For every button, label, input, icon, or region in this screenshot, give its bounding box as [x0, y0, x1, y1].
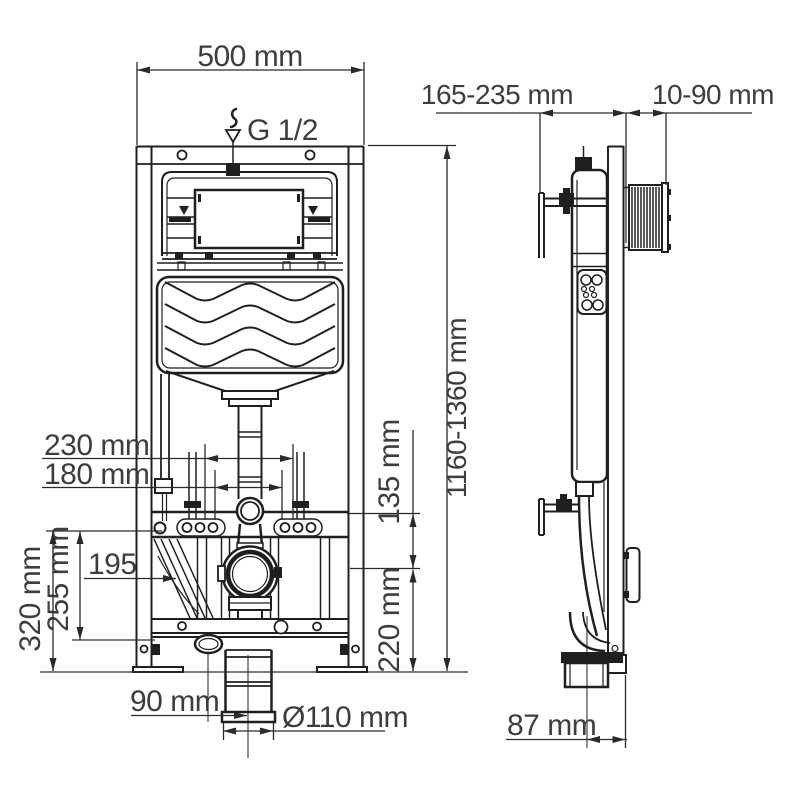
dim-flush-pipe-offset: 135 mm: [347, 419, 420, 568]
supply-position-label: 195: [88, 548, 137, 581]
side-cistern: [572, 146, 607, 612]
technical-drawing: 500 mm G 1/2 1160-1360 mm 230 mm 180 mm: [0, 0, 800, 800]
supply-pipe: [155, 374, 172, 521]
front-view: [133, 109, 367, 758]
dim-bend-height: 255 mm: [42, 526, 162, 640]
flush-plate-sleeve: [624, 183, 672, 252]
frame-feet: [133, 644, 367, 672]
dim-outlet-axis-height: 220 mm: [373, 567, 417, 672]
upper-wall-bracket: [539, 188, 608, 258]
bolt-spacing-inner-label: 180 mm: [44, 458, 149, 491]
side-outlet-depth-label: 87 mm: [507, 709, 596, 742]
flush-pipe-offset-label: 135 mm: [373, 419, 406, 524]
side-view: [539, 146, 671, 748]
frame-bottom-height-label: 320 mm: [14, 546, 47, 651]
water-wave: [165, 348, 335, 367]
flush-pipe: [239, 406, 262, 499]
waste-outlet: [218, 547, 282, 620]
plate-depth-label: 10-90 mm: [652, 79, 774, 110]
height-range-label: 1160-1360 mm: [441, 318, 472, 498]
access-panel: [195, 190, 303, 248]
side-flush-bend: [570, 496, 640, 651]
water-inlet-connection: [226, 109, 240, 176]
water-wave: [165, 326, 335, 345]
frame-width-label: 500 mm: [197, 40, 302, 73]
side-fixing-plate: [578, 270, 607, 314]
bottom-oval-outlet: [195, 635, 222, 653]
water-inlet-label: G 1/2: [247, 114, 318, 147]
dimensions: 500 mm G 1/2 1160-1360 mm 230 mm 180 mm: [14, 40, 774, 748]
depth-range-label: 165-235 mm: [421, 79, 573, 110]
lower-crossbar: [152, 619, 348, 637]
dim-depth-range: 165-235 mm 10-90 mm: [421, 79, 774, 243]
lower-wall-bracket: [539, 494, 578, 535]
cistern-upper-shell: [157, 172, 343, 270]
level-marker-right-icon: [308, 206, 318, 215]
water-drop-icon: [231, 109, 236, 127]
water-wave: [165, 282, 335, 301]
side-frame-rail: [607, 146, 626, 673]
outlet-offset-label: 90 mm: [130, 685, 219, 718]
drawing-canvas: 500 mm G 1/2 1160-1360 mm 230 mm 180 mm: [0, 0, 800, 800]
level-marker-left-icon: [179, 206, 189, 215]
outlet-axis-height-label: 220 mm: [373, 567, 406, 672]
outlet-diameter-label: Ø110 mm: [282, 701, 408, 734]
flush-elbow: [237, 498, 263, 548]
water-wave: [165, 304, 335, 323]
dim-supply-position: 195: [84, 548, 176, 582]
funnel-icon: [226, 130, 240, 142]
cistern-tank: [157, 277, 343, 406]
